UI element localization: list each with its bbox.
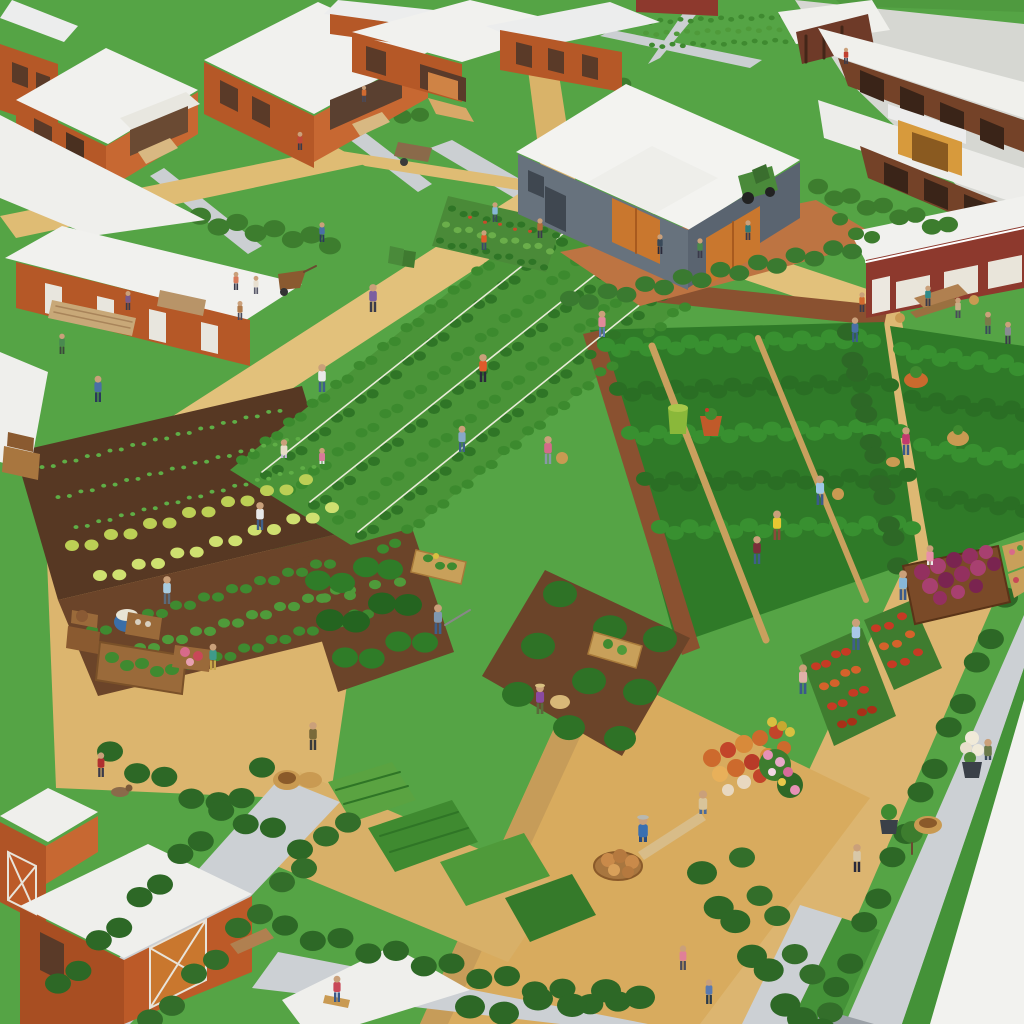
house-window — [582, 54, 598, 80]
person-torso — [318, 371, 326, 382]
lettuce-row-plant — [124, 529, 138, 540]
bread — [608, 864, 620, 876]
crop-row-plant — [401, 525, 413, 534]
crop-row-plant — [463, 347, 475, 356]
hedgerow-plant — [720, 910, 750, 933]
crop-row-plant — [426, 338, 438, 347]
person-head — [126, 291, 131, 296]
person-torso — [598, 317, 605, 327]
hedgerow-plant — [181, 964, 207, 984]
crop-row-plant — [355, 394, 367, 403]
tomato-row-plant — [841, 648, 851, 656]
picking-basket — [886, 457, 900, 467]
crop-row-plant — [524, 394, 536, 403]
lettuce-row-plant — [241, 495, 255, 506]
hedgerow-plant — [300, 931, 326, 951]
person-head — [680, 945, 686, 951]
person-leg — [989, 326, 991, 334]
green-row-plant — [293, 626, 305, 635]
green-row-plant — [268, 576, 280, 585]
hedgerow-plant — [729, 847, 755, 867]
tomato-row-plant — [859, 686, 869, 694]
person-torso — [852, 626, 861, 638]
green-sack — [402, 250, 416, 268]
crop-row-plant — [549, 342, 561, 351]
crop-row-plant — [667, 308, 679, 317]
top-garden-row-plant — [741, 41, 747, 46]
seedling-row-plant — [232, 484, 237, 488]
crop-row-plant — [413, 519, 425, 528]
crop-row-plant — [585, 350, 597, 359]
seedling-row-plant — [147, 472, 152, 476]
bread — [613, 849, 627, 863]
crop-row-plant — [429, 438, 441, 447]
bush-cluster-plant — [557, 994, 587, 1017]
person-leg — [323, 382, 326, 392]
crop-row-plant — [365, 356, 377, 365]
crop-row-plant — [488, 361, 500, 370]
tomato-row-plant — [884, 622, 894, 630]
green-row-plant — [246, 610, 258, 619]
garden-row-plant — [471, 211, 479, 217]
person-leg — [214, 660, 216, 670]
seedling-row-plant — [85, 454, 90, 458]
green-row-plant — [274, 602, 286, 611]
person-torso — [852, 323, 859, 332]
pot-tomato — [705, 408, 709, 412]
person-head — [479, 354, 486, 361]
crop-row-plant — [477, 400, 489, 409]
green-row-plant — [190, 627, 202, 636]
basket-inner — [919, 818, 937, 828]
crop-row-plant — [570, 387, 582, 396]
person-torso — [697, 243, 702, 251]
crop-row-plant — [368, 491, 380, 500]
person-leg — [364, 96, 366, 102]
green-row-plant — [212, 592, 224, 601]
seedling-row-plant — [176, 500, 181, 504]
hedgerow-plant — [86, 930, 112, 950]
person-head — [745, 220, 750, 225]
person-leg — [804, 683, 807, 694]
tomato-row-plant — [821, 660, 831, 668]
wheelbarrow-wheel — [280, 288, 288, 296]
seedling-row-plant — [90, 488, 95, 492]
person-leg — [903, 445, 906, 455]
equipment-wheel — [400, 158, 408, 166]
crate-greens-plant — [435, 562, 445, 570]
top-garden-row-plant — [738, 15, 744, 20]
person-leg — [860, 305, 862, 312]
person-leg — [856, 333, 858, 342]
lettuce-row-plant — [93, 570, 107, 581]
hedgerow-plant — [233, 814, 259, 834]
seedling-row-plant — [153, 438, 158, 442]
hedgerow-plant — [764, 906, 790, 926]
person-leg — [541, 703, 544, 714]
garden-row-plant — [488, 232, 496, 238]
cabbage — [954, 566, 970, 582]
person-leg — [852, 639, 855, 650]
crop-row-plant — [367, 389, 379, 398]
top-garden-row-plant — [674, 31, 680, 36]
tomato-row-plant — [840, 669, 850, 677]
crop-row-plant — [441, 433, 453, 442]
hedgerow-patio-plant — [842, 244, 862, 260]
pumpkin — [720, 742, 736, 758]
flower — [193, 651, 203, 661]
hedgerow-plant — [291, 858, 317, 878]
person-torso — [985, 317, 991, 326]
crop-row-plant — [403, 491, 415, 500]
garden-row-plant — [506, 222, 514, 228]
garden-strip-plant — [938, 217, 958, 233]
top-garden-row-plant — [718, 15, 724, 20]
top-garden-row-plant — [711, 40, 717, 45]
person-torso — [281, 445, 288, 454]
bush-row-plant — [863, 334, 881, 348]
crop-row-plant — [475, 333, 487, 342]
crop-row-plant — [556, 237, 568, 246]
green-row-plant — [252, 643, 264, 652]
person-leg — [485, 243, 487, 250]
hedgerow-plant — [873, 488, 895, 505]
tomato-row-plant — [900, 658, 910, 666]
crate-greens — [617, 645, 627, 655]
person-leg — [599, 327, 601, 337]
tomato-row-plant — [867, 706, 877, 714]
crop-row-plant — [377, 342, 389, 351]
seedling-row-plant — [164, 437, 169, 441]
top-garden-row-plant — [705, 28, 711, 33]
person-leg — [234, 283, 236, 290]
bush-row-plant — [881, 378, 899, 392]
hedgerow-plant — [106, 918, 132, 938]
dog-head — [126, 785, 133, 792]
person-leg — [844, 58, 846, 64]
hedgerow-plant — [178, 789, 204, 809]
person-torso — [234, 276, 239, 283]
person-torso — [163, 583, 171, 594]
garden-row-plant — [471, 248, 479, 254]
crate-greens-plant — [135, 658, 149, 669]
scene-svg — [0, 0, 1024, 1024]
crop-row-plant — [390, 370, 402, 379]
green-row-plant — [232, 618, 244, 627]
green-row-plant — [100, 625, 112, 634]
crop-row-plant — [331, 413, 343, 422]
lawn-basket — [895, 313, 905, 323]
crop-row-plant — [536, 389, 548, 398]
person-leg — [680, 961, 682, 970]
cabbage — [969, 579, 983, 593]
dog-figure — [76, 610, 88, 622]
crop-row-plant — [558, 270, 570, 279]
hedgerow-plant — [851, 912, 877, 932]
bushes-top-right-plant — [832, 213, 848, 225]
seedling-row-plant — [244, 483, 249, 487]
hedgerow-plant — [272, 915, 298, 935]
crop-row-plant — [437, 499, 449, 508]
person-torso — [899, 578, 907, 589]
crop-row-plant — [344, 442, 356, 451]
person-torso — [492, 207, 497, 215]
hedgerow-plant — [855, 406, 877, 423]
person-head — [210, 644, 217, 651]
seedling-row-plant — [158, 471, 163, 475]
hedgerow-plant — [45, 973, 71, 993]
person-torso — [544, 443, 552, 454]
green-row-plant — [288, 602, 300, 611]
green-row-plant — [184, 601, 196, 610]
person-leg — [537, 703, 540, 714]
top-garden-row-plant — [728, 17, 734, 22]
person-leg — [168, 594, 171, 604]
hedgerow-plant — [167, 844, 193, 864]
person-head — [984, 739, 991, 746]
crop-row-plant — [342, 374, 354, 383]
hedgerow-plant — [151, 767, 177, 787]
garden-row-plant — [552, 232, 560, 238]
person-leg — [482, 243, 484, 250]
person-head — [254, 276, 259, 281]
person-torso — [1005, 327, 1011, 336]
squash — [767, 717, 777, 727]
bushes-top-right-plant — [864, 231, 880, 243]
person-leg — [126, 303, 128, 310]
crop-row-plant — [354, 361, 366, 370]
lettuce-row-plant — [260, 485, 274, 496]
lettuce-row-plant — [85, 540, 99, 551]
hedgerow-patio-plant — [692, 273, 712, 289]
person-head — [706, 979, 712, 985]
jar — [135, 619, 141, 625]
green-row-plant — [170, 601, 182, 610]
person-torso — [536, 692, 544, 703]
person-leg — [538, 231, 540, 238]
hedgerow-plant — [837, 953, 863, 973]
lettuce-row-plant — [182, 507, 196, 518]
top-garden-row-plant — [756, 28, 762, 33]
lettuce-row-plant — [221, 496, 235, 507]
person-head — [369, 284, 376, 291]
person-leg — [858, 862, 861, 872]
person-torso — [745, 225, 750, 233]
crop-row-plant — [377, 544, 389, 553]
person-leg — [238, 313, 240, 320]
crop-row-plant — [389, 337, 401, 346]
person-torso — [333, 982, 340, 992]
picking-basket — [832, 488, 844, 500]
hedgerow-plant — [208, 801, 234, 821]
bushes-top-right-plant — [848, 228, 864, 240]
garden-row-plant — [448, 205, 456, 211]
crop-row-plant — [451, 352, 463, 361]
person-leg — [774, 529, 777, 540]
crop-row-plant — [318, 393, 330, 402]
jar — [145, 621, 151, 627]
potted-plant — [881, 804, 897, 820]
top-garden-row-plant — [659, 44, 665, 49]
crop-row-plant — [356, 496, 368, 505]
lettuce-row-plant — [306, 513, 320, 524]
chard-highlight-plant — [319, 593, 331, 602]
person-leg — [1005, 336, 1007, 344]
crop-row-plant — [511, 309, 523, 318]
crop-row-plant — [271, 431, 283, 440]
cabbage — [938, 572, 954, 588]
green-row-plant — [296, 568, 308, 577]
green-row-plant — [302, 594, 314, 603]
tomato-row-plant — [857, 708, 867, 716]
crop-row-plant — [462, 480, 474, 489]
crop-row-plant — [582, 381, 594, 390]
seedling-row-plant — [227, 454, 232, 458]
tomato-row-plant — [887, 660, 897, 668]
person-leg — [857, 639, 860, 650]
seedling-row-plant — [96, 519, 101, 523]
person-leg — [439, 623, 442, 634]
person-torso — [955, 303, 961, 311]
bush-grid-row-plant — [553, 715, 585, 740]
crop-row-plant — [452, 452, 464, 461]
cabbage — [951, 585, 965, 599]
crop-row-plant — [512, 342, 524, 351]
garden-red-dots-plant — [468, 216, 472, 219]
seedling-row-plant — [187, 496, 192, 500]
hedgerow-plant — [287, 839, 313, 859]
person-leg — [701, 251, 703, 258]
bush-grid-row-plant — [502, 682, 534, 707]
hedgerow-plant — [922, 759, 948, 779]
top-garden-row-plant — [721, 42, 727, 47]
person-torso — [657, 239, 662, 247]
top-garden-row-plant — [752, 39, 758, 44]
bin-lid — [668, 404, 688, 412]
crop-row-plant — [510, 440, 522, 449]
garden-row-plant — [459, 243, 467, 249]
person-leg — [480, 372, 483, 382]
crop-row-plant — [487, 328, 499, 337]
top-garden-row-plant — [694, 31, 700, 36]
crop-row-plant — [296, 446, 308, 455]
crop-row-plant — [401, 323, 413, 332]
tomato-row-plant — [851, 666, 861, 674]
garden-row-plant — [436, 237, 444, 243]
person-leg — [241, 313, 243, 320]
crop-row-plant — [461, 313, 473, 322]
person-leg — [374, 302, 377, 312]
crop-row-plant — [424, 304, 436, 313]
seedling-row-plant — [170, 467, 175, 471]
cabbage — [946, 552, 962, 568]
chard-row-plant — [359, 648, 385, 668]
flower — [790, 785, 800, 795]
bush-grid-row-plant — [643, 626, 677, 653]
chard-row-plant — [394, 594, 422, 616]
seedling-row-plant — [278, 472, 283, 476]
garden-row-plant — [460, 211, 468, 217]
seedling-row-plant — [124, 478, 129, 482]
person-head — [699, 790, 707, 798]
person-torso — [844, 52, 849, 58]
tray-produce — [1017, 545, 1023, 551]
person-head — [319, 222, 324, 227]
crop-row-plant — [450, 485, 462, 494]
crop-row-plant — [483, 261, 495, 270]
garden-row-plant — [448, 243, 456, 249]
crop-row-plant — [436, 299, 448, 308]
person-leg — [319, 382, 322, 392]
crate-greens-plant — [423, 554, 433, 562]
crop-row-plant — [379, 511, 391, 520]
top-garden-row-plant — [680, 43, 686, 48]
flower — [763, 750, 773, 760]
person-torso — [638, 824, 648, 837]
person-leg — [904, 589, 907, 600]
basket-inner — [278, 772, 296, 784]
chard-row-plant — [329, 573, 355, 593]
person-hat — [637, 815, 649, 820]
crop-row-plant — [438, 332, 450, 341]
crop-row-plant — [485, 294, 497, 303]
person-head — [899, 570, 907, 578]
person-torso — [925, 291, 931, 299]
crop-row-plant — [389, 539, 401, 548]
crop-row-plant — [607, 361, 619, 370]
seedling-row-plant — [67, 494, 72, 498]
crate-greens-plant — [120, 660, 134, 671]
tomato-row-plant — [897, 612, 907, 620]
crop-row-plant — [330, 380, 342, 389]
crop-row-plant — [343, 408, 355, 417]
seedling-row-plant — [193, 461, 198, 465]
bush-row-plant — [903, 521, 921, 535]
person-leg — [846, 58, 848, 64]
person-leg — [863, 305, 865, 312]
top-garden-row-plant — [777, 28, 783, 33]
hedgerow-plant — [147, 874, 173, 894]
garden-strip-plant — [841, 188, 861, 204]
top-garden-row-plant — [746, 27, 752, 32]
person-torso — [256, 509, 264, 520]
crop-row-plant — [633, 311, 645, 320]
tomato-row-plant — [827, 702, 837, 710]
crate-greens-plant — [105, 652, 119, 663]
crop-row-plant — [319, 427, 331, 436]
garden-red-dots-plant — [513, 228, 517, 231]
person-leg — [63, 347, 65, 354]
tomato-row-plant — [811, 662, 821, 670]
person-head — [319, 448, 325, 454]
person-torso — [479, 361, 487, 372]
tomato-row-plant — [892, 640, 902, 648]
crop-row-plant — [295, 412, 307, 421]
lettuce-row-plant — [151, 558, 165, 569]
hedgerow-plant — [124, 763, 150, 783]
seedling-row-plant — [216, 455, 221, 459]
person-torso — [59, 339, 65, 347]
person-torso — [481, 235, 486, 243]
chard-row-plant — [385, 631, 411, 651]
garden-row-plant — [442, 221, 450, 227]
garden-strip-plant — [808, 179, 828, 195]
crop-row-plant — [560, 369, 572, 378]
house-bushes-plant — [319, 237, 341, 254]
seedling-row-plant — [278, 409, 283, 413]
hedgerow-patio-plant — [710, 262, 730, 278]
bush-cluster-plant — [625, 986, 655, 1009]
